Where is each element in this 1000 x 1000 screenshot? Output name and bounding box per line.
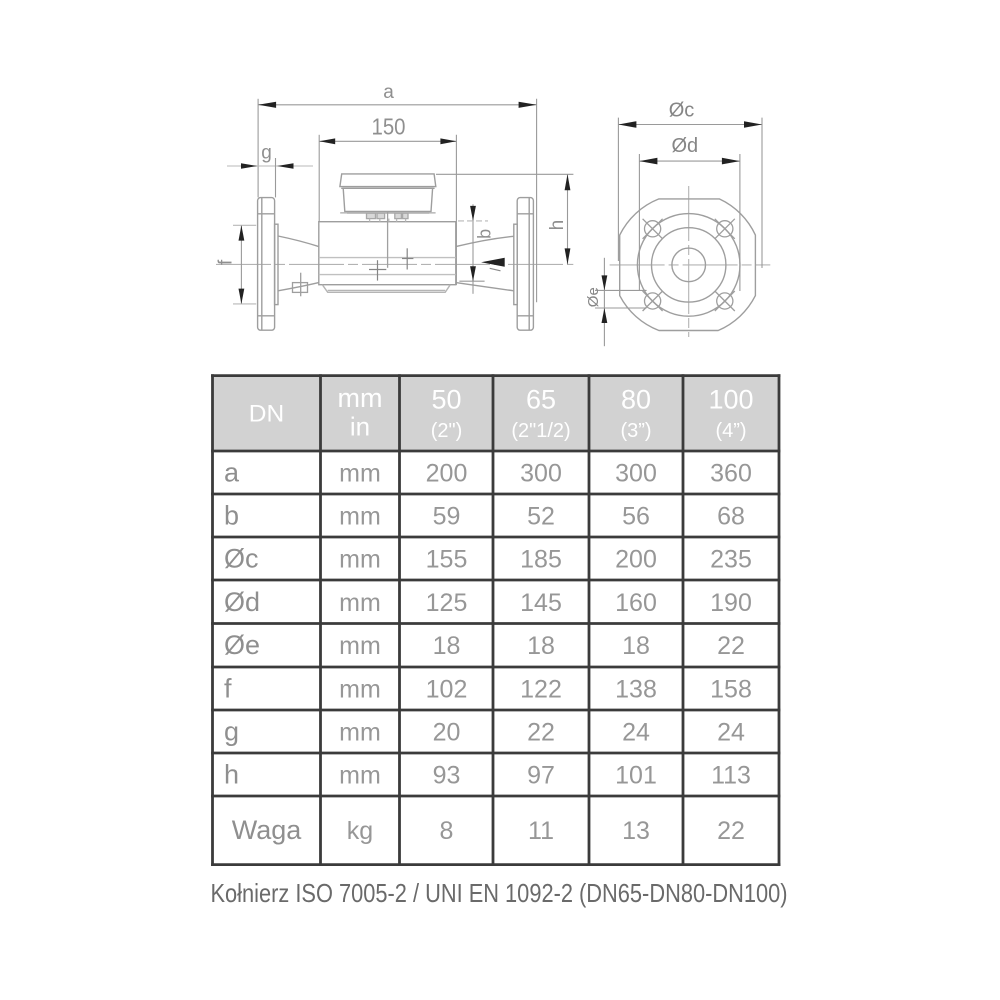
svg-text:Øe: Øe: [585, 287, 602, 307]
svg-text:f: f: [216, 259, 237, 265]
svg-text:93: 93: [433, 762, 461, 790]
svg-text:300: 300: [520, 460, 562, 488]
svg-text:102: 102: [426, 676, 468, 704]
svg-text:235: 235: [710, 546, 752, 574]
svg-text:22: 22: [527, 719, 555, 747]
svg-text:125: 125: [426, 589, 468, 617]
svg-text:in: in: [350, 412, 370, 442]
svg-text:Ød: Ød: [671, 135, 698, 157]
svg-text:68: 68: [717, 503, 745, 531]
svg-text:65: 65: [526, 385, 556, 415]
svg-text:160: 160: [615, 589, 657, 617]
svg-text:13: 13: [622, 817, 650, 845]
svg-text:(4”): (4”): [715, 420, 746, 442]
svg-text:mm: mm: [339, 676, 381, 704]
svg-text:f: f: [224, 674, 232, 704]
svg-text:11: 11: [528, 817, 554, 845]
svg-text:138: 138: [615, 676, 657, 704]
svg-text:24: 24: [622, 719, 650, 747]
svg-text:mm: mm: [339, 546, 381, 574]
svg-text:Ød: Ød: [224, 587, 260, 617]
svg-text:155: 155: [426, 546, 468, 574]
svg-text:mm: mm: [339, 762, 381, 790]
svg-text:Waga: Waga: [232, 815, 303, 845]
svg-text:Øe: Øe: [224, 630, 260, 660]
svg-text:h: h: [547, 220, 568, 231]
svg-text:360: 360: [710, 460, 752, 488]
svg-text:18: 18: [622, 632, 650, 660]
svg-text:97: 97: [527, 762, 555, 790]
svg-text:g: g: [261, 143, 272, 164]
svg-text:a: a: [383, 82, 394, 103]
svg-text:22: 22: [717, 817, 745, 845]
svg-text:Øc: Øc: [224, 544, 259, 574]
svg-text:mm: mm: [339, 589, 381, 617]
svg-text:52: 52: [527, 503, 555, 531]
svg-text:50: 50: [431, 385, 461, 415]
svg-text:(2"): (2"): [431, 420, 463, 442]
svg-text:200: 200: [426, 460, 468, 488]
svg-text:mm: mm: [339, 719, 381, 747]
svg-text:100: 100: [708, 385, 753, 415]
svg-text:18: 18: [527, 632, 555, 660]
svg-text:24: 24: [717, 719, 745, 747]
svg-text:150: 150: [372, 114, 406, 140]
svg-text:(3”): (3”): [620, 420, 651, 442]
svg-text:56: 56: [622, 503, 650, 531]
svg-text:200: 200: [615, 546, 657, 574]
svg-text:mm: mm: [339, 460, 381, 488]
svg-text:Øc: Øc: [669, 100, 695, 122]
svg-text:22: 22: [717, 632, 745, 660]
svg-text:185: 185: [520, 546, 562, 574]
svg-text:101: 101: [615, 762, 657, 790]
svg-text:145: 145: [520, 589, 562, 617]
svg-text:122: 122: [520, 676, 562, 704]
svg-text:Kołnierz ISO 7005-2 / UNI EN 1: Kołnierz ISO 7005-2 / UNI EN 1092-2 (DN6…: [211, 878, 788, 908]
svg-text:mm: mm: [338, 383, 383, 413]
svg-text:8: 8: [440, 817, 454, 845]
svg-text:a: a: [224, 458, 240, 488]
svg-text:b: b: [224, 501, 239, 531]
svg-text:20: 20: [433, 719, 461, 747]
svg-text:mm: mm: [339, 503, 381, 531]
svg-text:59: 59: [433, 503, 461, 531]
svg-text:190: 190: [710, 589, 752, 617]
svg-text:h: h: [224, 760, 239, 790]
svg-text:113: 113: [711, 762, 751, 790]
svg-text:300: 300: [615, 460, 657, 488]
svg-text:158: 158: [710, 676, 752, 704]
svg-text:g: g: [224, 717, 239, 747]
svg-text:kg: kg: [347, 817, 373, 845]
svg-text:DN: DN: [249, 401, 284, 428]
svg-text:80: 80: [621, 385, 651, 415]
svg-text:18: 18: [433, 632, 461, 660]
svg-text:mm: mm: [339, 632, 381, 660]
svg-text:(2"1/2): (2"1/2): [511, 420, 570, 442]
svg-text:b: b: [474, 229, 494, 239]
